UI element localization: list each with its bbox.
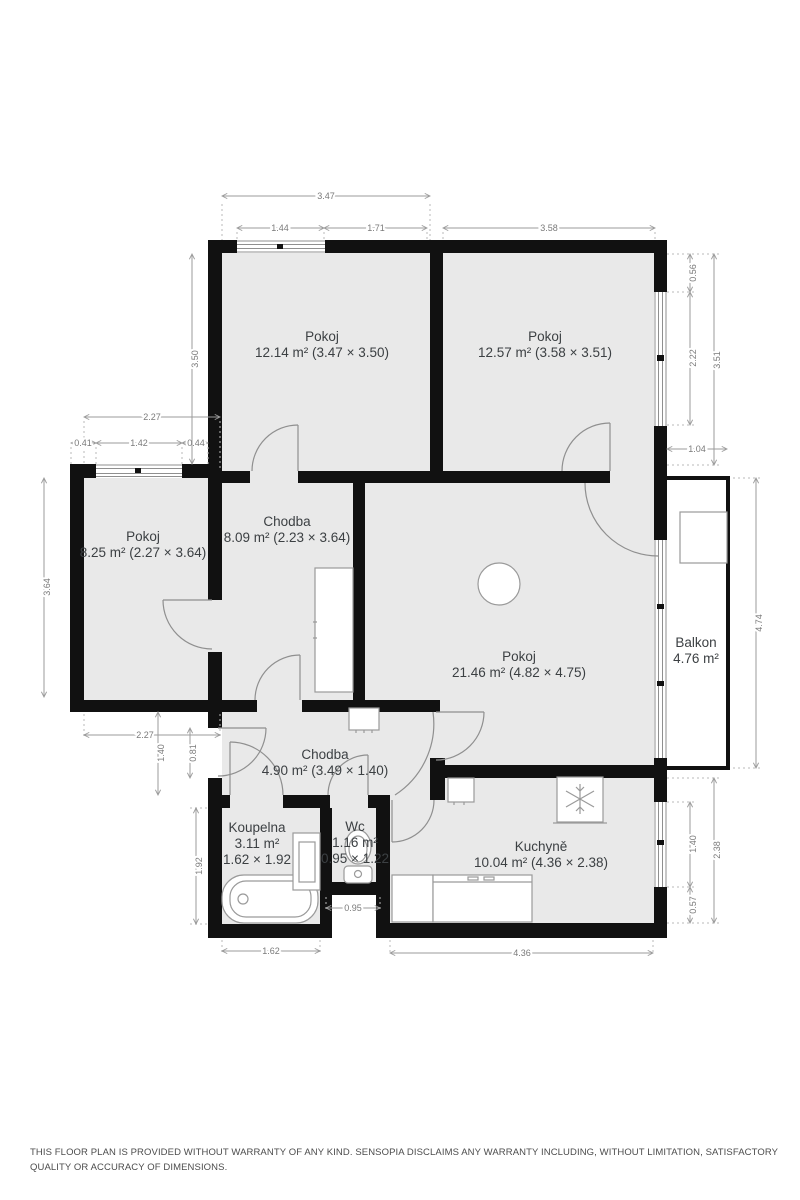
- svg-text:1.16 m²: 1.16 m²: [332, 835, 378, 850]
- dimension-label: 1.71: [367, 223, 385, 233]
- radiator-icon: [349, 708, 379, 733]
- fridge-icon: [553, 777, 607, 823]
- dimension-label: 0.95: [344, 903, 362, 913]
- dimension-label: 3.58: [540, 223, 558, 233]
- svg-text:4.76 m²: 4.76 m²: [673, 651, 719, 666]
- svg-text:Pokoj: Pokoj: [305, 329, 339, 344]
- dimension-label: 2.22: [688, 349, 698, 367]
- svg-text:Koupelna: Koupelna: [228, 820, 286, 835]
- dimension-label: 2.27: [143, 412, 161, 422]
- svg-text:8.09 m² (2.23 × 3.64): 8.09 m² (2.23 × 3.64): [224, 530, 350, 545]
- dimension-label: 4.74: [754, 614, 764, 632]
- svg-text:0.95 × 1.22: 0.95 × 1.22: [321, 851, 389, 866]
- table-circle-icon: [478, 563, 520, 605]
- dimension-label: 3.50: [190, 350, 200, 368]
- dimension-label: 1.92: [194, 857, 204, 875]
- svg-text:8.25 m² (2.27 × 3.64): 8.25 m² (2.27 × 3.64): [80, 545, 206, 560]
- balcony-door-window: [654, 540, 667, 758]
- balcony-furniture-icon: [680, 512, 727, 563]
- window-left-room: [96, 464, 182, 478]
- window-kitchen: [654, 802, 667, 887]
- disclaimer-text: THIS FLOOR PLAN IS PROVIDED WITHOUT WARR…: [30, 1146, 778, 1175]
- svg-text:3.11 m²: 3.11 m²: [235, 836, 280, 851]
- svg-text:Pokoj: Pokoj: [502, 649, 536, 664]
- dimension-label: 2.27: [136, 730, 154, 740]
- dimension-label: 0.56: [688, 264, 698, 282]
- svg-text:1.62 × 1.92: 1.62 × 1.92: [223, 852, 291, 867]
- svg-text:Chodba: Chodba: [263, 514, 311, 529]
- dimension-label: 1.04: [688, 444, 706, 454]
- dimension-label: 0.41: [74, 438, 92, 448]
- svg-text:21.46 m² (4.82 × 4.75): 21.46 m² (4.82 × 4.75): [452, 665, 586, 680]
- svg-text:Pokoj: Pokoj: [126, 529, 160, 544]
- svg-text:Kuchyně: Kuchyně: [515, 839, 568, 854]
- svg-text:4.90 m² (3.49 × 1.40): 4.90 m² (3.49 × 1.40): [262, 763, 388, 778]
- room-label-balkon: Balkon 4.76 m²: [673, 635, 719, 666]
- dimension-label: 0.57: [688, 896, 698, 914]
- kitchen-sink-icon: [448, 778, 474, 805]
- dimension-label: 3.51: [712, 351, 722, 369]
- dimension-label: 3.64: [42, 578, 52, 596]
- floor-plan: 3.47 1.44 1.71 3.58 2.27 0.41 1.42 0.44 …: [0, 0, 800, 1200]
- svg-text:Balkon: Balkon: [675, 635, 716, 650]
- dimension-label: 1.42: [130, 438, 148, 448]
- dimension-label: 1.40: [156, 744, 166, 762]
- svg-text:12.14 m² (3.47 × 3.50): 12.14 m² (3.47 × 3.50): [255, 345, 389, 360]
- wardrobe-icon: [313, 568, 353, 692]
- dimension-label: 3.47: [317, 191, 335, 201]
- dimension-label: 0.44: [187, 438, 205, 448]
- svg-text:Pokoj: Pokoj: [528, 329, 562, 344]
- dimension-label: 4.36: [513, 948, 531, 958]
- svg-text:Chodba: Chodba: [301, 747, 349, 762]
- window-top-right-room: [654, 292, 667, 426]
- dimension-label: 2.38: [712, 841, 722, 859]
- dimension-label: 0.81: [188, 744, 198, 762]
- svg-text:12.57 m² (3.58 × 3.51): 12.57 m² (3.58 × 3.51): [478, 345, 612, 360]
- window-top-left-room: [237, 240, 325, 253]
- kitchen-counter-icon: [392, 875, 532, 922]
- svg-text:10.04 m² (4.36 × 2.38): 10.04 m² (4.36 × 2.38): [474, 855, 608, 870]
- dimension-label: 1.44: [271, 223, 289, 233]
- dimension-label: 1.62: [262, 946, 280, 956]
- svg-text:Wc: Wc: [345, 819, 365, 834]
- dimension-label: 1.40: [688, 835, 698, 853]
- washbasin-icon: [293, 833, 320, 890]
